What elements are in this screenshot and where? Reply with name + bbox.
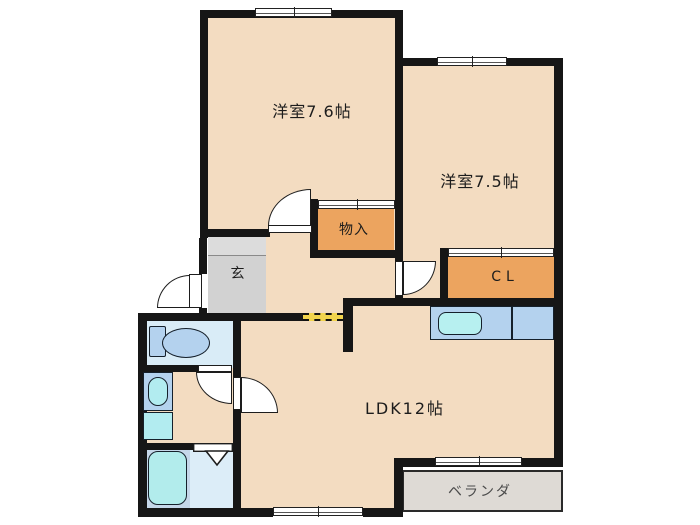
sliding-door-storage: [318, 200, 395, 209]
sliding-door-closet: [448, 248, 554, 257]
window-ldk-south: [273, 507, 363, 516]
wall-segment: [199, 238, 207, 274]
bathtub: [148, 451, 187, 505]
kitchen-sink: [438, 312, 482, 335]
window-room-east: [437, 57, 507, 66]
closet-label: CL: [491, 269, 519, 285]
window-room-west: [255, 8, 332, 17]
sliding-window-veranda: [435, 457, 522, 466]
entrance-door-arc: [157, 275, 190, 308]
wall-segment: [138, 508, 273, 517]
wall-segment: [395, 10, 403, 261]
wall-segment: [200, 10, 208, 238]
entrance-label: 玄: [231, 263, 246, 283]
room-east-label: 洋室7.5帖: [440, 168, 519, 192]
room-west-label: 洋室7.6帖: [272, 98, 351, 122]
kitchen-counter-divider: [511, 307, 513, 339]
wall-segment: [147, 365, 198, 372]
wall-segment: [554, 58, 563, 467]
ldk-floor-lower: [237, 462, 403, 512]
ldk-label: LDK12帖: [365, 395, 445, 419]
wall-segment: [310, 250, 398, 258]
wall-segment: [233, 313, 241, 377]
hall-ldk-opening: [303, 313, 343, 321]
wall-segment: [348, 298, 563, 306]
wall-segment: [199, 308, 207, 316]
entrance-door-leaf: [189, 274, 202, 308]
washroom-door-leaf: [233, 377, 241, 410]
door-leaf-room-west: [268, 225, 312, 233]
wall-segment: [395, 296, 403, 306]
floorplan-canvas: 洋室7.6帖 洋室7.5帖 物入 玄 CL LDK12帖 ベランダ: [0, 0, 700, 525]
wall-segment: [233, 410, 241, 517]
toilet-door-leaf: [198, 365, 232, 372]
wall-segment: [200, 229, 270, 237]
toilet-bowl: [162, 328, 210, 358]
washing-machine: [143, 412, 173, 440]
wall-segment: [138, 313, 303, 321]
wall-segment: [440, 248, 448, 306]
bath-folding-door: [193, 443, 233, 469]
storage-label: 物入: [339, 219, 369, 239]
door-leaf-room-east: [395, 261, 403, 296]
wall-segment: [343, 298, 353, 352]
veranda-label: ベランダ: [448, 481, 512, 501]
wall-segment: [147, 443, 193, 450]
washbasin-bowl: [148, 377, 168, 406]
